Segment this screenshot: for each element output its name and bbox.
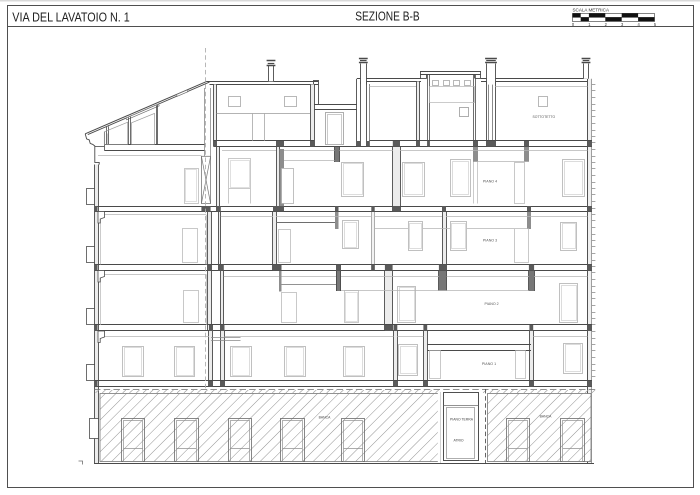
svg-text:PIANO 1: PIANO 1 — [482, 362, 496, 366]
svg-text:SCALA METRICA: SCALA METRICA — [573, 8, 610, 13]
svg-text:ATRIO: ATRIO — [453, 438, 463, 442]
svg-text:BANCA: BANCA — [319, 415, 331, 419]
svg-text:PIANO TERRA: PIANO TERRA — [450, 417, 474, 421]
svg-text:PIANO 4: PIANO 4 — [483, 179, 497, 183]
svg-text:PIANO 3: PIANO 3 — [483, 238, 497, 242]
svg-text:SOTTOTETTO: SOTTOTETTO — [532, 115, 555, 119]
svg-text:VIA DEL LAVATOIO N. 1: VIA DEL LAVATOIO N. 1 — [12, 9, 130, 24]
svg-text:SEZIONE B-B: SEZIONE B-B — [355, 10, 420, 24]
svg-text:BANCA: BANCA — [540, 414, 552, 418]
svg-text:PIANO 2: PIANO 2 — [485, 302, 499, 306]
